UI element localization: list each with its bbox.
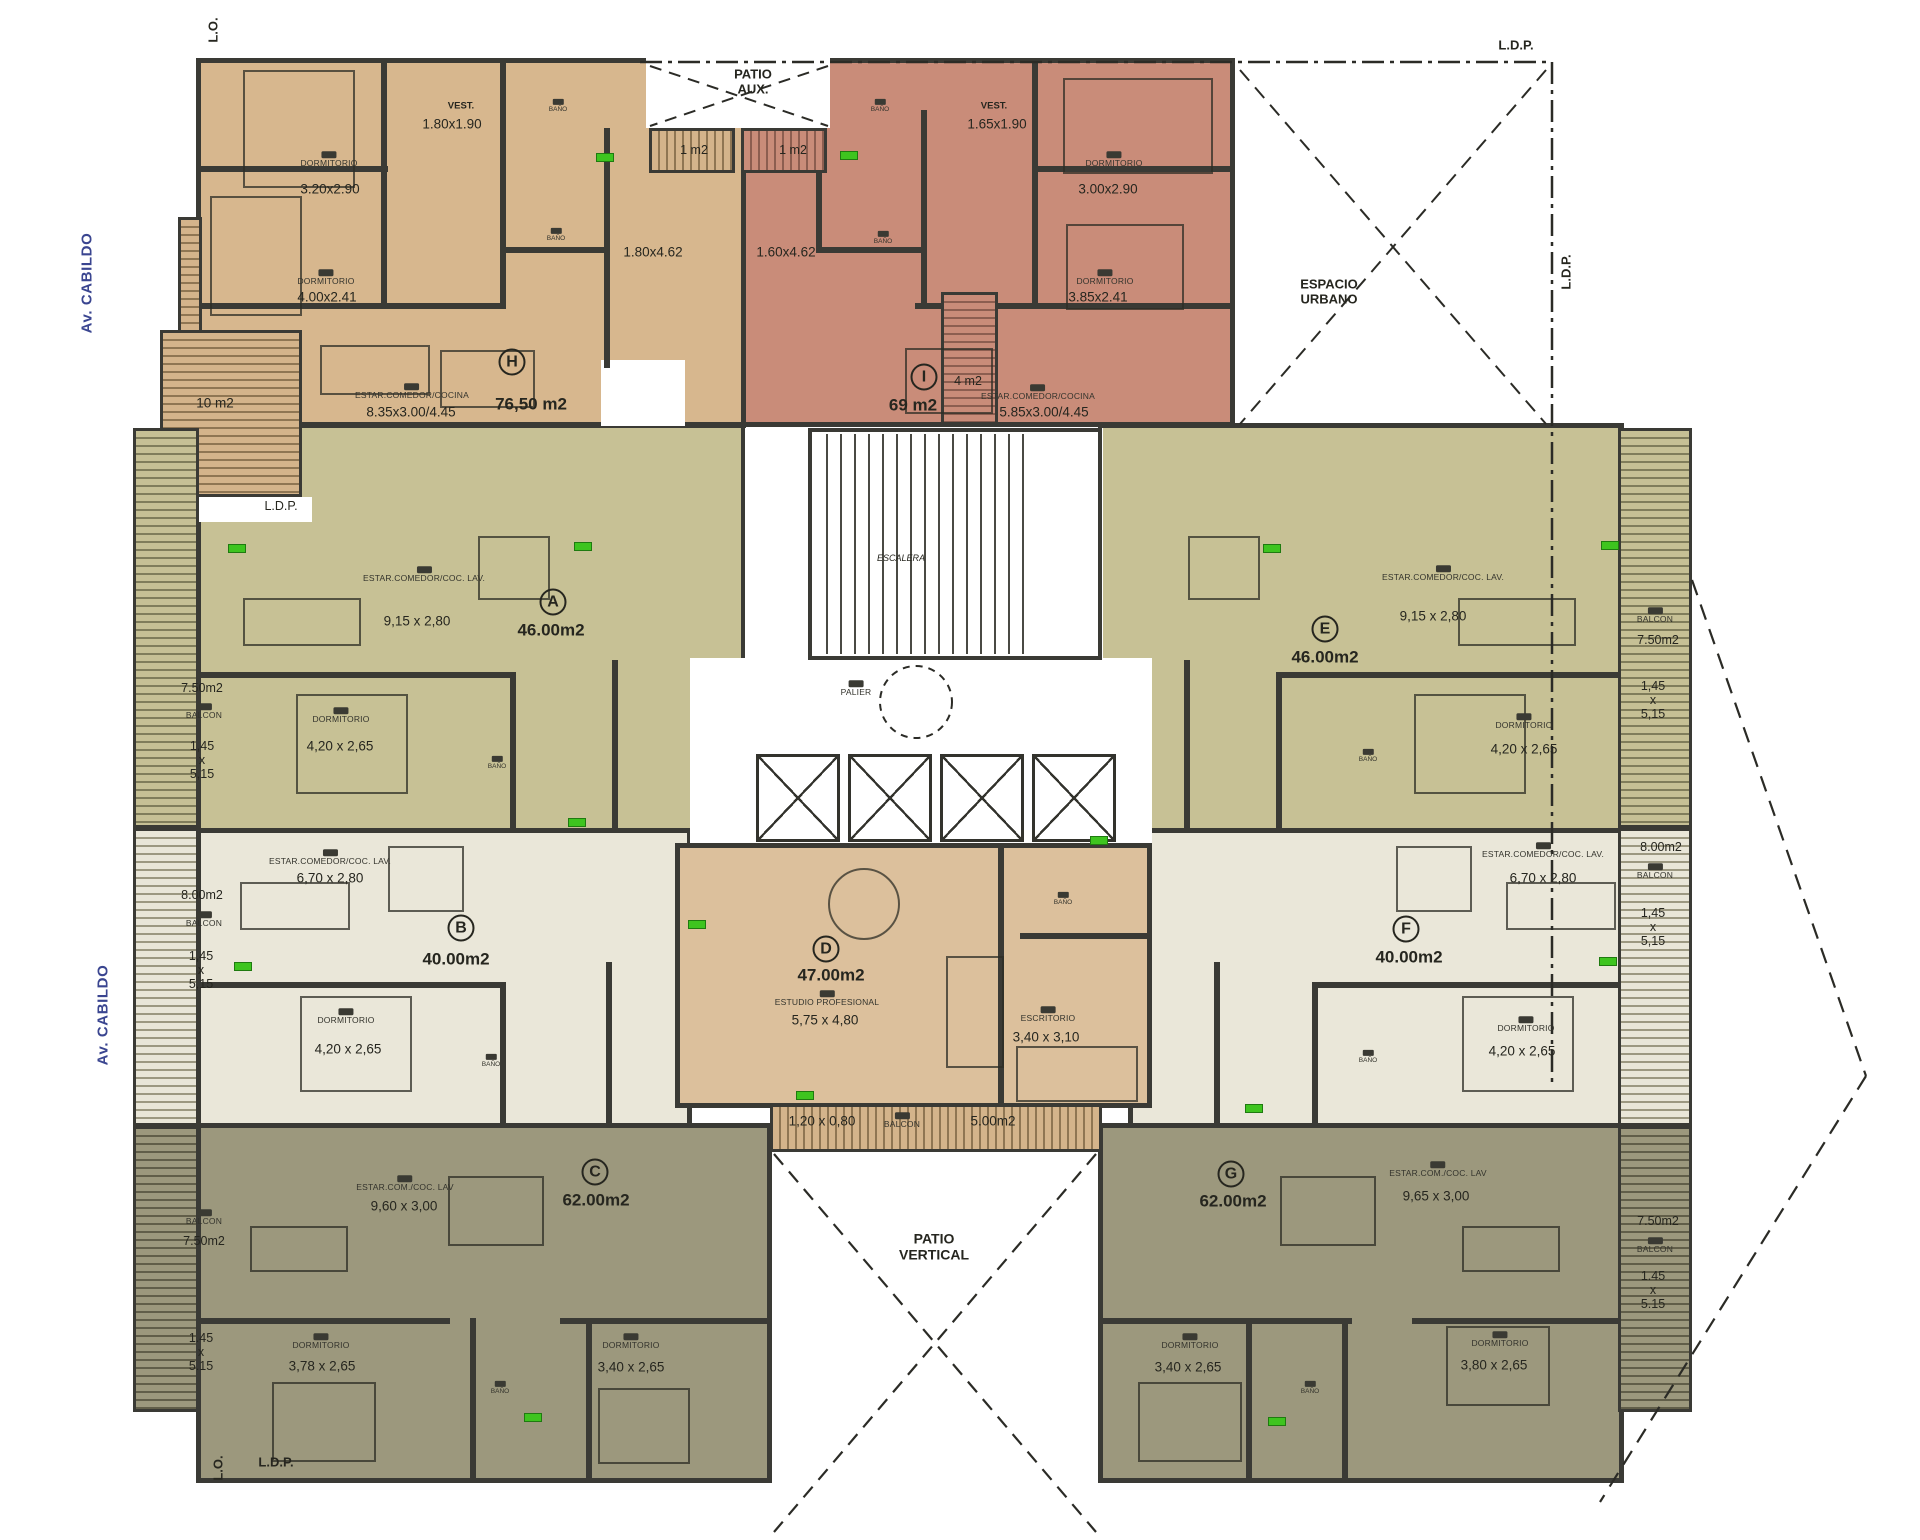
vent-marker (568, 818, 586, 827)
unit-c-balcony-label: BALCON (186, 1209, 222, 1227)
table-a (478, 536, 550, 600)
wall-f3 (1214, 962, 1220, 1128)
unit-f-balcony-area: 8.00m2 (1640, 840, 1682, 854)
vent-marker (1268, 1417, 1286, 1426)
unit-h-patio-balcony: 1 m2 (680, 143, 708, 157)
wall-h4 (500, 58, 506, 309)
ldp-marker-bottom: L.D.P. (258, 1456, 293, 1471)
wall-g1 (1098, 1318, 1352, 1324)
unit-d-studio-dim: 5,75 x 4,80 (792, 1012, 859, 1027)
sofa-f (1506, 882, 1616, 930)
unit-h-dorm2-label: DORMITORIO (297, 269, 354, 287)
lo-marker-bottom: L.O. (212, 1455, 227, 1480)
wall-h6 (604, 128, 610, 368)
unit-h-kitchen-dim: 1.80x4.62 (623, 244, 682, 259)
wall-c3 (470, 1318, 476, 1478)
wall-g4 (1342, 1318, 1348, 1478)
unit-a-area: 46.00m2 (517, 620, 584, 639)
unit-g-balcony-area: 7.50m2 (1637, 1214, 1679, 1228)
unit-a-dorm-label: DORMITORIO (312, 707, 369, 725)
patio-vertical-label: PATIO VERTICAL (899, 1231, 969, 1262)
vent-marker (574, 542, 592, 551)
unit-c-letter: C (582, 1159, 609, 1186)
unit-i-kitchen-dim: 1.60x4.62 (756, 244, 815, 259)
ldp-marker-right: L.D.P. (1560, 254, 1575, 289)
unit-d-bath-label: BAÑO (1054, 892, 1072, 906)
unit-b-dorm-label: DORMITORIO (317, 1008, 374, 1026)
unit-b-dorm-dim: 4,20 x 2,65 (315, 1041, 382, 1056)
unit-h-dorm2-dim: 4.00x2.41 (297, 289, 356, 304)
unit-i-dorm2-dim: 3.85x2.41 (1068, 289, 1127, 304)
unit-e-dorm-label: DORMITORIO (1495, 713, 1552, 731)
unit-i-dorm2-label: DORMITORIO (1076, 269, 1133, 287)
unit-d-office-label: ESCRITORIO (1021, 1006, 1076, 1024)
unit-h-dorm1-label: DORMITORIO (300, 151, 357, 169)
unit-c-balcony-area: 7.50m2 (183, 1234, 225, 1248)
unit-i-vest-label: VEST. (981, 102, 1007, 113)
espacio-diag-1 (1240, 70, 1546, 424)
vent-marker (596, 153, 614, 162)
unit-i-dorm1-label: DORMITORIO (1085, 151, 1142, 169)
table-d (828, 868, 900, 940)
wall-d2 (1020, 933, 1152, 939)
bed-d (1016, 1046, 1138, 1102)
unit-h-area: 76,50 m2 (495, 394, 567, 413)
unit-g-living-label: ESTAR.COM./COC. LAV (1389, 1161, 1486, 1179)
wall-g2 (1412, 1318, 1624, 1324)
stairs-label: ESCALERA (877, 553, 925, 563)
wall-g3 (1246, 1318, 1252, 1478)
unit-i-bath1-label: BAÑO (871, 99, 889, 113)
unit-g-dorm1-dim: 3,40 x 2,65 (1155, 1359, 1222, 1374)
unit-c-dorm2-dim: 3,40 x 2,65 (598, 1359, 665, 1374)
ldp-angled-1 (1692, 580, 1866, 1076)
floor-plan-canvas: L.O. Av. CABILDO Av. CABILDO L.D.P. L.D.… (0, 0, 1920, 1540)
unit-i-terrace-area: 4 m2 (954, 374, 982, 388)
vent-marker (524, 1413, 542, 1422)
unit-e-dorm-dim: 4,20 x 2,65 (1491, 741, 1558, 756)
unit-g-balcony-dim: 1.45 x 5.15 (1641, 1269, 1665, 1311)
unit-f-bath-label: BAÑO (1359, 1050, 1377, 1064)
bed-h2 (210, 196, 302, 316)
unit-e-balcony-label: BALCON (1637, 607, 1673, 625)
unit-d-studio-label: ESTUDIO PROFESIONAL (775, 990, 879, 1008)
unit-b-balcony-dim: 1,45 x 5,15 (189, 949, 213, 991)
unit-f-balcony-dim: 1,45 x 5,15 (1641, 906, 1665, 948)
unit-i-living-dim: 5.85x3.00/4.45 (999, 404, 1088, 419)
unit-g-area: 62.00m2 (1199, 1191, 1266, 1210)
bed-g2 (1138, 1382, 1242, 1462)
vent-marker (688, 920, 706, 929)
wall-b3 (606, 962, 612, 1128)
unit-d-balcony-area: 5.00m2 (970, 1113, 1015, 1128)
unit-a-living-label: ESTAR.COMEDOR/COC. LAV. (363, 566, 485, 584)
vent-marker (796, 1091, 814, 1100)
unit-c-living-label: ESTAR.COM./COC. LAV (356, 1175, 453, 1193)
unit-e-living-dim: 9,15 x 2,80 (1400, 608, 1467, 623)
wall-i5 (816, 247, 927, 253)
table-b (388, 846, 464, 912)
street-label-top: Av. CABILDO (80, 233, 97, 334)
street-label-bottom: Av. CABILDO (96, 965, 113, 1066)
unit-d-balcony-label: BALCON (884, 1112, 920, 1130)
wall-a2 (510, 672, 516, 832)
table-e (1188, 536, 1260, 600)
vent-marker (1245, 1104, 1263, 1113)
ldp-marker-left: L.D.P. (264, 499, 297, 513)
unit-c-bath-label: BAÑO (491, 1381, 509, 1395)
unit-a-letter: A (540, 589, 567, 616)
unit-h-terrace-area: 10 m2 (196, 395, 234, 410)
unit-h-vest-label: VEST. (448, 102, 474, 113)
unit-f-dorm-label: DORMITORIO (1497, 1016, 1554, 1034)
unit-h-bath2-label: BAÑO (547, 228, 565, 242)
unit-a-dorm-dim: 4,20 x 2,65 (307, 738, 374, 753)
unit-g-dorm1-label: DORMITORIO (1161, 1333, 1218, 1351)
palier-label: PALIER (841, 680, 872, 698)
unit-b-area: 40.00m2 (422, 949, 489, 968)
balcony-e-deck (1618, 428, 1692, 828)
unit-c-dorm2-label: DORMITORIO (602, 1333, 659, 1351)
wall-c4 (586, 1318, 592, 1478)
espacio-urbano-label: ESPACIO URBANO (1300, 277, 1358, 306)
sofa-c (250, 1226, 348, 1272)
table-f (1396, 846, 1472, 912)
wall-e2 (1276, 672, 1282, 832)
unit-e-balcony-area: 7.50m2 (1637, 633, 1679, 647)
vent-marker (234, 962, 252, 971)
unit-h-dorm1-dim: 3.20x2.90 (300, 181, 359, 196)
elevator-3 (940, 754, 1024, 842)
unit-g-dorm2-label: DORMITORIO (1471, 1331, 1528, 1349)
unit-h-vest-dim: 1.80x1.90 (422, 116, 481, 131)
unit-d-balcony-dim: 1,20 x 0,80 (789, 1113, 856, 1128)
wall-e3 (1184, 660, 1190, 830)
unit-h-letter: H (499, 349, 526, 376)
unit-i-patio-balcony: 1 m2 (779, 143, 807, 157)
unit-i-dorm1-dim: 3.00x2.90 (1078, 181, 1137, 196)
bed-c1 (272, 1382, 376, 1462)
patio-vertical-diag-2 (774, 1154, 1096, 1532)
patio-aux-label: PATIO AUX. (734, 67, 772, 96)
elevator-1 (756, 754, 840, 842)
desk-d (946, 956, 1004, 1068)
elevator-4 (1032, 754, 1116, 842)
unit-c-dorm1-dim: 3,78 x 2,65 (289, 1358, 356, 1373)
unit-a-bath-label: BAÑO (488, 756, 506, 770)
unit-c-dorm1-label: DORMITORIO (292, 1333, 349, 1351)
vent-marker (228, 544, 246, 553)
unit-b-living-label: ESTAR.COMEDOR/COC. LAV. (269, 849, 391, 867)
vent-marker (840, 151, 858, 160)
vent-marker (1263, 544, 1281, 553)
unit-e-bath-label: BAÑO (1359, 749, 1377, 763)
unit-i-bath2-label: BAÑO (874, 231, 892, 245)
unit-g-dorm2-dim: 3,80 x 2,65 (1461, 1357, 1528, 1372)
unit-e-area: 46.00m2 (1291, 647, 1358, 666)
unit-f-letter: F (1393, 916, 1420, 943)
wall-h5 (503, 247, 608, 253)
unit-a-balcony-area: 7.50m2 (181, 681, 223, 695)
unit-g-letter: G (1218, 1161, 1245, 1188)
lo-marker-top: L.O. (207, 17, 222, 42)
wall-c1 (196, 1318, 450, 1324)
unit-c-balcony-dim: 1.45 x 5.15 (189, 1331, 213, 1373)
unit-h-living-dim: 8.35x3.00/4.45 (366, 404, 455, 419)
unit-g-bath-label: BAÑO (1301, 1381, 1319, 1395)
unit-c-living-dim: 9,60 x 3,00 (371, 1198, 438, 1213)
bed-c2 (598, 1388, 690, 1464)
wall-a1 (196, 672, 516, 678)
wall-b2 (500, 982, 506, 1128)
elevator-2 (848, 754, 932, 842)
stairs-treads (814, 434, 1036, 654)
unit-i-letter: I (911, 364, 938, 391)
unit-b-living-dim: 6,70 x 2,80 (297, 870, 364, 885)
unit-b-bath-label: BAÑO (482, 1054, 500, 1068)
vent-marker (1601, 541, 1619, 550)
sofa-e (1458, 598, 1576, 646)
wall-f2 (1312, 982, 1318, 1128)
unit-f-living-label: ESTAR.COMEDOR/COC. LAV. (1482, 842, 1604, 860)
unit-d-letter: D (813, 936, 840, 963)
unit-b-balcony-label: BALCON (186, 911, 222, 929)
unit-i-area: 69 m2 (889, 395, 937, 414)
sofa-a (243, 598, 361, 646)
unit-i-vest-dim: 1.65x1.90 (967, 116, 1026, 131)
unit-b-balcony-area: 8.00m2 (181, 888, 223, 902)
sofa-g (1462, 1226, 1560, 1272)
unit-a-living-dim: 9,15 x 2,80 (384, 613, 451, 628)
unit-e-letter: E (1312, 616, 1339, 643)
unit-f-area: 40.00m2 (1375, 947, 1442, 966)
patio-vertical-diag-1 (774, 1154, 1096, 1532)
bed-h1 (243, 70, 355, 188)
espacio-diag-2 (1240, 70, 1546, 424)
unit-g-living-dim: 9,65 x 3,00 (1403, 1188, 1470, 1203)
unit-d-office-dim: 3,40 x 3,10 (1013, 1029, 1080, 1044)
wall-a3 (612, 660, 618, 830)
wall-h2 (381, 58, 387, 309)
ldp-marker-top-right: L.D.P. (1498, 39, 1533, 54)
entry-gap (601, 360, 685, 426)
unit-f-living-dim: 6,70 x 2,80 (1510, 870, 1577, 885)
wall-e1 (1282, 672, 1624, 678)
unit-c-area: 62.00m2 (562, 1190, 629, 1209)
unit-e-living-label: ESTAR.COMEDOR/COC. LAV. (1382, 565, 1504, 583)
terrace-10m2-strip (178, 217, 202, 337)
wall-i2 (1032, 58, 1038, 309)
unit-f-balcony-label: BALCON (1637, 863, 1673, 881)
unit-d-area: 47.00m2 (797, 965, 864, 984)
unit-e-balcony-dim: 1,45 x 5,15 (1641, 679, 1665, 721)
unit-g-balcony-label: BALCON (1637, 1237, 1673, 1255)
sofa-b (240, 882, 350, 930)
unit-f-dorm-dim: 4,20 x 2,65 (1489, 1043, 1556, 1058)
wall-i4 (921, 110, 927, 309)
vent-marker (1090, 836, 1108, 845)
unit-a-balcony-dim: 1,45 x 5,15 (190, 739, 214, 781)
wall-b1 (196, 982, 506, 988)
unit-b-letter: B (448, 915, 475, 942)
vent-marker (1599, 957, 1617, 966)
table-c (448, 1176, 544, 1246)
unit-h-living-label: ESTAR.COMEDOR/COCINA (355, 383, 469, 401)
unit-a-balcony-label: BALCON (186, 703, 222, 721)
unit-i-living-label: ESTAR.COMEDOR/COCINA (981, 384, 1095, 402)
wall-f1 (1318, 982, 1624, 988)
unit-h-bath1-label: BAÑO (549, 99, 567, 113)
table-g (1280, 1176, 1376, 1246)
